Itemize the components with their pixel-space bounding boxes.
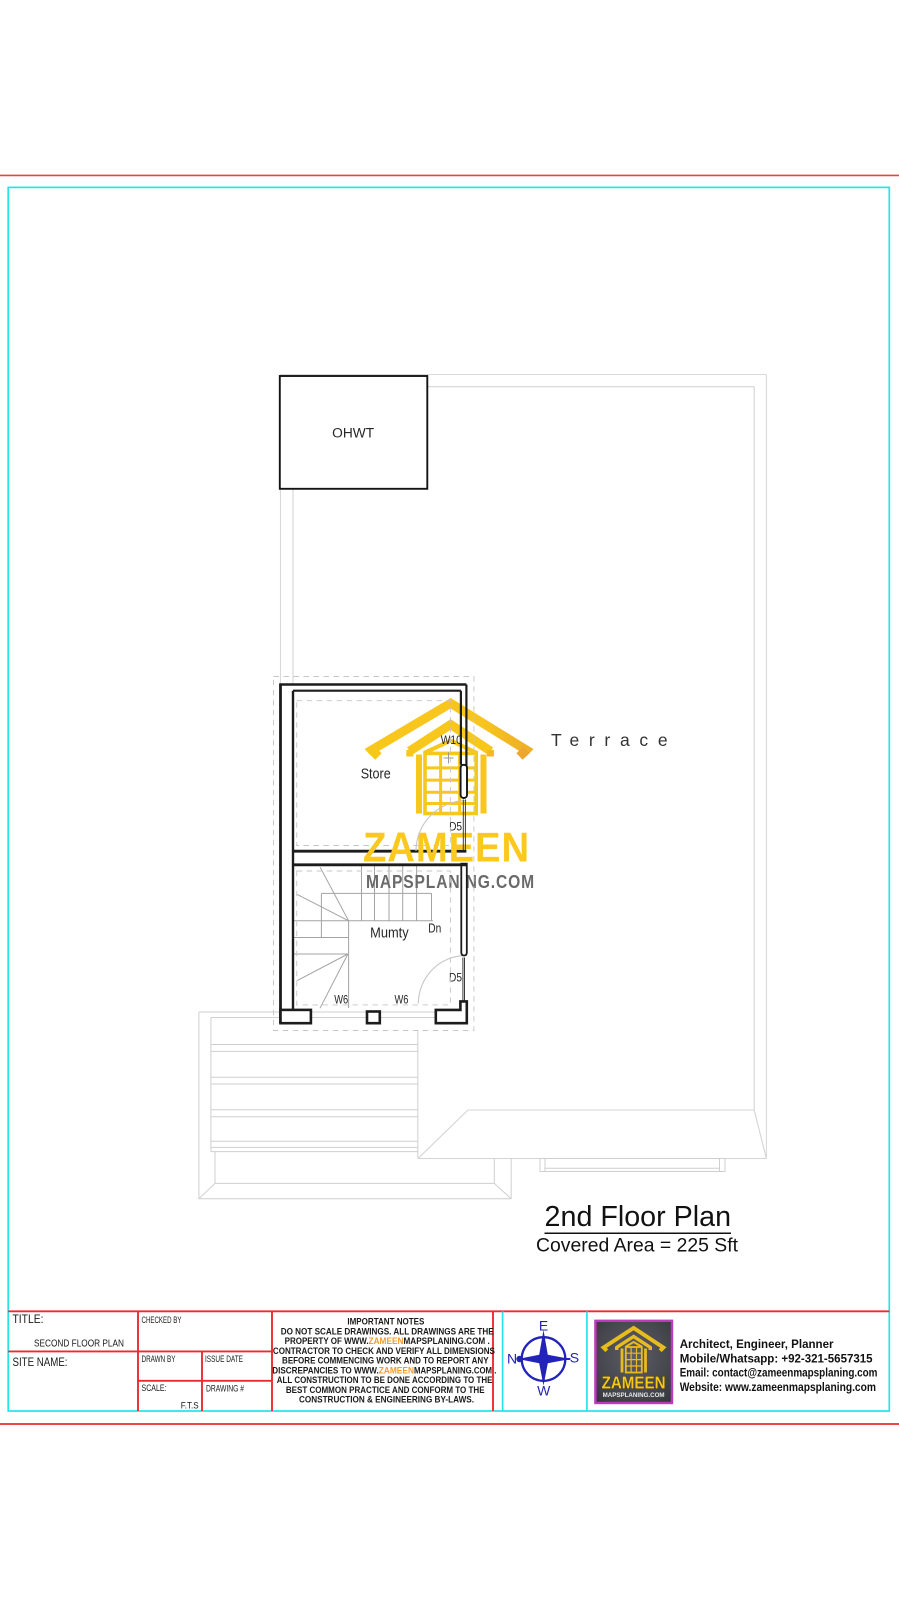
svg-text:ZAMEEN: ZAMEEN [602, 1373, 666, 1393]
svg-text:W: W [537, 1383, 551, 1399]
svg-text:D5: D5 [449, 972, 462, 984]
svg-text:DRAWN BY: DRAWN BY [142, 1354, 176, 1364]
svg-text:BEFORE COMMENCING WORK AND TO: BEFORE COMMENCING WORK AND TO REPORT ANY [282, 1356, 489, 1366]
svg-text:W10: W10 [441, 735, 462, 747]
svg-text:SITE NAME:: SITE NAME: [13, 1357, 68, 1369]
svg-text:Architect, Engineer, Planner: Architect, Engineer, Planner [680, 1337, 834, 1351]
svg-text:Covered Area = 225 Sft: Covered Area = 225 Sft [536, 1236, 739, 1257]
svg-text:DISCREPANCIES TO WWW.: DISCREPANCIES TO WWW. [272, 1365, 378, 1375]
svg-text:ALL CONSTRUCTION TO BE DONE AC: ALL CONSTRUCTION TO BE DONE ACCORDING TO… [277, 1375, 493, 1385]
svg-text:SCALE:: SCALE: [142, 1383, 167, 1393]
svg-text:MAPSPLANING.COM: MAPSPLANING.COM [603, 1393, 665, 1399]
svg-text:IMPORTANT NOTES: IMPORTANT NOTES [347, 1317, 424, 1327]
svg-text:ZAMEEN: ZAMEEN [369, 1336, 404, 1346]
svg-text:TITLE:: TITLE: [13, 1314, 44, 1326]
svg-text:DO NOT SCALE DRAWINGS. ALL DRA: DO NOT SCALE DRAWINGS. ALL DRAWINGS ARE … [281, 1326, 494, 1336]
svg-text:PROPERTY OF WWW.: PROPERTY OF WWW. [285, 1336, 369, 1346]
svg-text:CONSTRUCTION & ENGINEERING BY-: CONSTRUCTION & ENGINEERING BY-LAWS. [299, 1395, 474, 1405]
svg-text:Terrace: Terrace [551, 730, 677, 750]
svg-text:CONTRACTOR TO CHECK AND VERIFY: CONTRACTOR TO CHECK AND VERIFY ALL DIMEN… [273, 1346, 495, 1356]
svg-text:DRAWING #: DRAWING # [206, 1384, 244, 1394]
svg-text:MAPSPLANING.COM .: MAPSPLANING.COM . [414, 1365, 496, 1375]
svg-text:Website: www.zameenmapsplaning: Website: www.zameenmapsplaning.com [680, 1380, 876, 1394]
svg-text:ISSUE DATE: ISSUE DATE [205, 1354, 243, 1364]
svg-text:Store: Store [361, 766, 391, 783]
svg-text:D5: D5 [449, 821, 462, 833]
svg-text:ZAMEEN: ZAMEEN [379, 1365, 414, 1375]
svg-text:Mobile/Whatsapp: +92-321-56573: Mobile/Whatsapp: +92-321-5657315 [680, 1351, 873, 1365]
svg-text:OHWT: OHWT [332, 426, 374, 441]
svg-text:Mumty: Mumty [370, 926, 409, 942]
svg-text:Email: contact@zameenmapsplani: Email: contact@zameenmapsplaning.com [680, 1366, 878, 1380]
svg-text:SECOND FLOOR PLAN: SECOND FLOOR PLAN [34, 1339, 124, 1350]
svg-text:CHECKED BY: CHECKED BY [142, 1315, 182, 1325]
svg-text:S: S [570, 1350, 579, 1366]
svg-text:2nd Floor Plan: 2nd Floor Plan [545, 1201, 732, 1233]
svg-text:MAPSPLANING.COM .: MAPSPLANING.COM . [404, 1336, 490, 1346]
svg-text:N: N [507, 1351, 517, 1367]
svg-text:E: E [539, 1318, 548, 1334]
svg-text:BEST COMMON PRACTICE AND CONFO: BEST COMMON PRACTICE AND CONFORM TO THE [286, 1385, 485, 1395]
svg-text:F.T.S: F.T.S [181, 1401, 199, 1411]
svg-text:Dn: Dn [428, 921, 441, 935]
